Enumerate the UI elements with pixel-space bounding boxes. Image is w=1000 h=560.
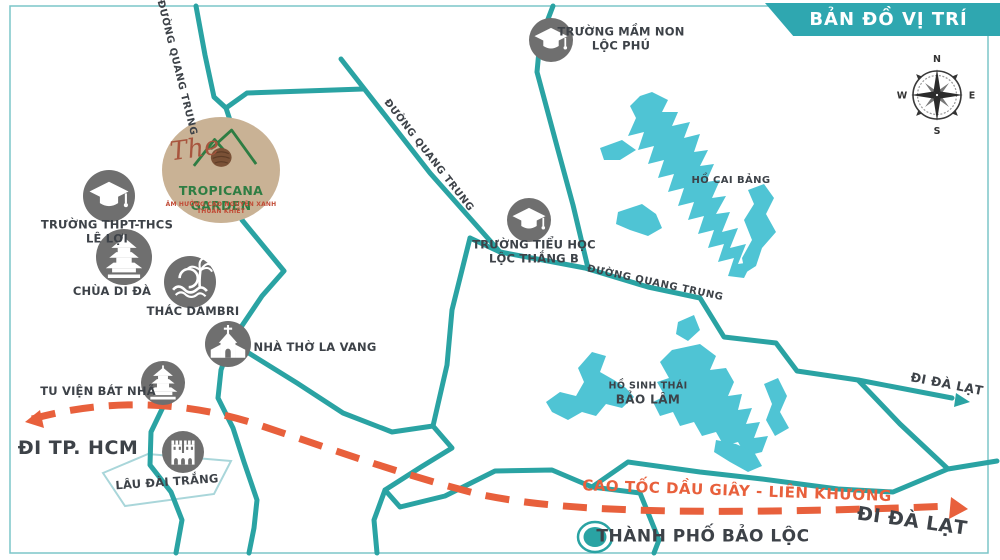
road-quang-trung-north — [196, 6, 363, 108]
label-line: TRƯỜNG THPT-THCS — [41, 218, 173, 232]
map-title: BẢN ĐỒ VỊ TRÍ — [809, 9, 967, 30]
road-center-drop — [433, 238, 470, 426]
location-map: BẢN ĐỒ VỊ TRÍ — [0, 0, 1000, 560]
label-ho-bao-lam: HỒ SINH THÁI BẢO LÂM — [608, 381, 687, 408]
compass-icon: N S W E — [895, 53, 979, 137]
label-le-loi: TRƯỜNG THPT-THCS LÊ LỢI — [41, 218, 173, 247]
waterfall-palm-icon — [164, 256, 216, 308]
label-di-tp-hcm: ĐI TP. HCM — [18, 437, 139, 461]
tropicana-garden-logo: The TROPICANA GARDEN ÂM HƯỞNG CAO NGUYÊN… — [162, 117, 280, 223]
label-ho-cai-bang: HỒ CAI BẢNG — [692, 175, 771, 188]
label-line: TRƯỜNG TIỂU HỌC — [472, 238, 596, 252]
label-line: LÊ LỢI — [41, 232, 173, 246]
label-line: TRƯỜNG MẦM NON — [557, 25, 684, 39]
castle-icon — [162, 431, 204, 473]
compass-n-label: N — [933, 54, 941, 65]
label-line: BẢO LÂM — [608, 392, 687, 407]
landmark-thac-dambri — [164, 256, 216, 308]
label-nha-tho-la-vang: NHÀ THỜ LA VANG — [254, 340, 377, 354]
label-chua-di-da: CHÙA DI ĐÀ — [73, 284, 151, 298]
compass-rose: N S W E — [895, 53, 979, 137]
label-thanh-pho-bao-loc: THÀNH PHỐ BẢO LỘC — [596, 526, 809, 547]
graduation-cap-icon — [83, 170, 135, 222]
road-network — [150, 6, 997, 553]
compass-w-label: W — [897, 91, 908, 102]
road-bottom-drop — [374, 490, 385, 553]
label-line: LỘC THẮNG B — [472, 252, 596, 266]
compass-s-label: S — [934, 126, 941, 137]
label-thac-dambri: THÁC DAMBRI — [147, 304, 240, 318]
title-banner: BẢN ĐỒ VỊ TRÍ — [765, 3, 1000, 36]
church-icon — [205, 321, 251, 367]
road-southwest-1 — [218, 342, 257, 553]
highway-west-arrowhead — [25, 410, 44, 428]
logo-tagline: ÂM HƯỞNG CAO NGUYÊN XANH THUẦN KHIẾT — [162, 201, 280, 215]
landmark-nha-tho-la-vang — [205, 321, 251, 367]
label-line: HỒ SINH THÁI — [608, 381, 687, 393]
landmark-tieu-hoc-loc-thang — [507, 198, 551, 242]
landmark-lau-dai-trang — [162, 431, 204, 473]
label-tu-vien-bat-nha: TU VIỆN BÁT NHÃ — [40, 384, 156, 398]
label-mam-non: TRƯỜNG MẦM NON LỘC PHÚ — [557, 25, 684, 54]
landmark-le-loi — [83, 170, 135, 222]
graduation-cap-icon — [507, 198, 551, 242]
label-tieu-hoc-loc-thang: TRƯỜNG TIỂU HỌC LỘC THẮNG B — [472, 238, 596, 267]
label-line: LỘC PHÚ — [557, 39, 684, 53]
compass-e-label: E — [969, 91, 976, 102]
